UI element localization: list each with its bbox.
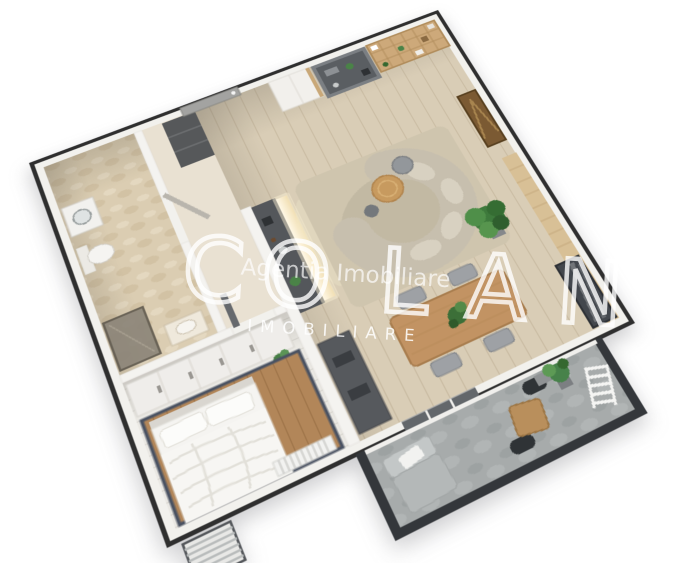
apartment-plan — [29, 10, 676, 563]
floorplan-render: C O L A N Agentia Imobiliare IMOBILIARE — [0, 0, 676, 563]
